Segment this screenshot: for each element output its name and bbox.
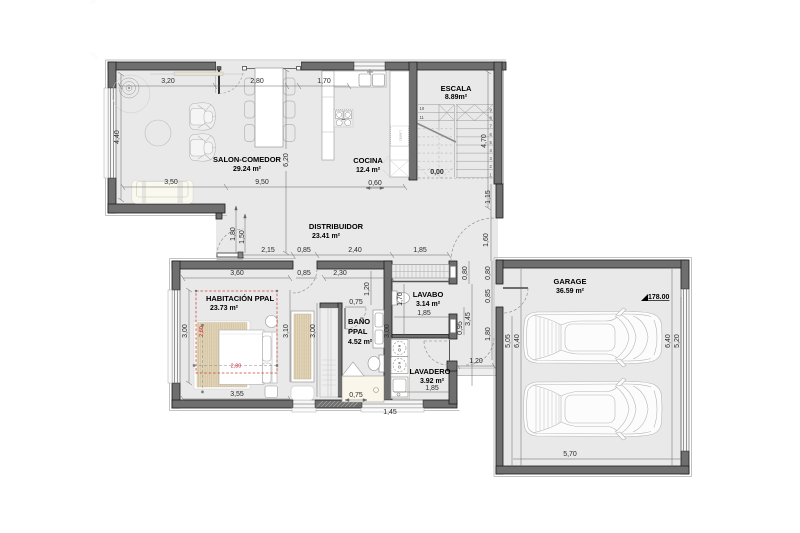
svg-text:3.92 m²: 3.92 m² bbox=[420, 378, 445, 385]
svg-text:0,85: 0,85 bbox=[297, 270, 311, 277]
svg-text:3,50: 3,50 bbox=[164, 179, 178, 186]
svg-text:DISTRIBUIDOR: DISTRIBUIDOR bbox=[309, 222, 364, 231]
svg-text:3.14 m²: 3.14 m² bbox=[416, 301, 441, 308]
svg-text:BAÑO: BAÑO bbox=[348, 317, 370, 326]
svg-text:3,00: 3,00 bbox=[182, 324, 189, 338]
svg-text:0,80: 0,80 bbox=[462, 266, 469, 280]
svg-text:1,15: 1,15 bbox=[485, 190, 492, 204]
svg-text:3,10: 3,10 bbox=[283, 324, 290, 338]
svg-text:2,40: 2,40 bbox=[348, 247, 362, 254]
svg-text:1,70: 1,70 bbox=[317, 78, 331, 85]
svg-text:1,85: 1,85 bbox=[413, 247, 427, 254]
svg-text:1,20: 1,20 bbox=[469, 358, 483, 365]
svg-text:178.00: 178.00 bbox=[648, 294, 670, 301]
svg-text:LAVADERO: LAVADERO bbox=[410, 367, 451, 376]
svg-text:0,00: 0,00 bbox=[430, 169, 444, 176]
svg-text:1,85: 1,85 bbox=[417, 310, 431, 317]
svg-text:6,40: 6,40 bbox=[665, 334, 672, 348]
svg-text:1,45: 1,45 bbox=[383, 409, 397, 416]
svg-text:LAVABO: LAVABO bbox=[413, 290, 444, 299]
svg-text:COCINA: COCINA bbox=[353, 156, 383, 165]
svg-text:6,20: 6,20 bbox=[283, 153, 290, 167]
svg-text:GARAGE: GARAGE bbox=[554, 277, 587, 286]
svg-text:11: 11 bbox=[420, 115, 425, 120]
svg-text:0,75: 0,75 bbox=[349, 392, 363, 399]
svg-text:1,80: 1,80 bbox=[230, 227, 237, 241]
svg-text:5,70: 5,70 bbox=[563, 451, 577, 458]
svg-text:PPAL: PPAL bbox=[348, 327, 368, 336]
svg-text:23.41 m²: 23.41 m² bbox=[312, 233, 341, 240]
svg-text:0,85: 0,85 bbox=[297, 247, 311, 254]
svg-text:3,00: 3,00 bbox=[310, 324, 317, 338]
svg-text:4,70: 4,70 bbox=[481, 134, 488, 148]
svg-text:9,50: 9,50 bbox=[255, 179, 269, 186]
svg-text:2,15: 2,15 bbox=[261, 247, 275, 254]
svg-text:10: 10 bbox=[420, 106, 425, 111]
svg-text:1,50: 1,50 bbox=[239, 230, 246, 244]
svg-text:3,45: 3,45 bbox=[465, 312, 472, 326]
svg-text:1,80: 1,80 bbox=[485, 327, 492, 341]
svg-text:2,80: 2,80 bbox=[231, 364, 242, 370]
svg-text:6,40: 6,40 bbox=[514, 334, 521, 348]
svg-text:3,20: 3,20 bbox=[161, 78, 175, 85]
svg-text:ESCALA: ESCALA bbox=[441, 84, 472, 93]
svg-text:HABITACIÓN PPAL: HABITACIÓN PPAL bbox=[206, 294, 274, 303]
svg-text:3,55: 3,55 bbox=[230, 391, 244, 398]
svg-text:0,60: 0,60 bbox=[368, 180, 382, 187]
svg-text:3,60: 3,60 bbox=[230, 270, 244, 277]
svg-text:0,85: 0,85 bbox=[485, 289, 492, 303]
svg-text:4,40: 4,40 bbox=[114, 130, 121, 144]
svg-text:36.59 m²: 36.59 m² bbox=[556, 288, 585, 295]
svg-text:0,95: 0,95 bbox=[457, 321, 464, 335]
svg-text:23.73 m²: 23.73 m² bbox=[210, 305, 239, 312]
svg-text:29.24 m²: 29.24 m² bbox=[233, 166, 262, 173]
svg-text:8.89m²: 8.89m² bbox=[445, 94, 468, 101]
svg-text:3,00: 3,00 bbox=[384, 324, 391, 338]
svg-text:0,80: 0,80 bbox=[485, 266, 492, 280]
svg-text:2,60: 2,60 bbox=[199, 326, 205, 337]
svg-text:0,75: 0,75 bbox=[349, 299, 363, 306]
svg-text:2,80: 2,80 bbox=[250, 78, 264, 85]
svg-text:12.4 m²: 12.4 m² bbox=[356, 167, 381, 174]
svg-text:1,60: 1,60 bbox=[483, 233, 490, 247]
svg-text:Lavdo.: Lavdo. bbox=[399, 130, 403, 141]
svg-text:1,20: 1,20 bbox=[364, 282, 371, 296]
svg-text:5,05: 5,05 bbox=[505, 334, 512, 348]
svg-text:4.52 m²: 4.52 m² bbox=[348, 339, 373, 346]
svg-text:SALON-COMEDOR: SALON-COMEDOR bbox=[213, 155, 281, 164]
svg-text:2,30: 2,30 bbox=[333, 270, 347, 277]
svg-text:1,85: 1,85 bbox=[425, 385, 439, 392]
svg-text:1,70: 1,70 bbox=[397, 292, 404, 306]
svg-text:5,20: 5,20 bbox=[674, 334, 681, 348]
